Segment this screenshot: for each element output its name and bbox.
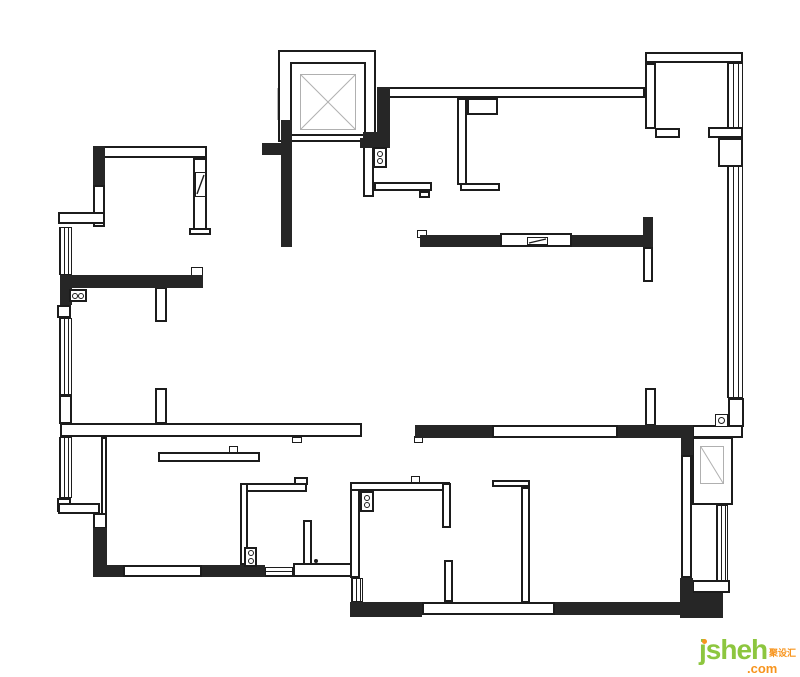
meter-symbol: [715, 414, 728, 427]
wall-segment: [645, 388, 656, 426]
wall-segment: [123, 565, 202, 577]
door-point: [314, 559, 318, 563]
wall-segment: [158, 452, 260, 462]
wall-solid: [350, 602, 422, 617]
wall-segment: [93, 513, 107, 529]
wall-segment: [57, 305, 71, 318]
wall-solid: [262, 143, 281, 155]
wall-segment: [350, 482, 450, 491]
floorplan-image: jsheh 聚设汇 .com: [0, 0, 800, 677]
wall-segment: [681, 455, 692, 578]
wall-notch: [229, 446, 238, 453]
wall-segment: [303, 520, 312, 567]
wall-segment: [692, 580, 730, 593]
wall-segment: [521, 487, 530, 603]
wall-solid: [555, 602, 697, 615]
wall-notch: [411, 476, 420, 483]
wall-segment: [59, 395, 72, 424]
wall-segment: [645, 52, 743, 63]
wall-segment: [492, 480, 530, 487]
wall-segment: [422, 602, 555, 615]
wall-solid: [93, 146, 105, 185]
wall-notch: [195, 172, 206, 197]
wall-segment: [655, 128, 680, 138]
ac-unit-box: [700, 446, 724, 484]
wall-solid: [643, 217, 653, 235]
wall-solid: [281, 120, 292, 247]
window-glazing: [351, 578, 363, 602]
wall-solid: [415, 425, 492, 438]
wall-segment: [155, 388, 167, 424]
window-glazing: [716, 505, 728, 582]
window-glazing: [727, 63, 743, 398]
wall-solid: [680, 578, 693, 618]
wall-solid: [60, 275, 203, 288]
wall-segment: [101, 437, 107, 515]
wall-solid: [93, 565, 123, 577]
wall-segment: [293, 563, 352, 577]
wall-segment: [457, 98, 467, 185]
wall-segment: [350, 482, 360, 578]
wall-solid: [572, 235, 653, 247]
wall-segment: [294, 477, 308, 485]
wall-segment: [444, 560, 453, 602]
wall-segment: [645, 63, 656, 129]
window-glazing: [265, 567, 293, 577]
socket-symbol: [69, 289, 87, 302]
wall-segment: [155, 287, 167, 322]
wall-segment: [189, 228, 211, 235]
wall-segment: [492, 425, 618, 438]
wall-notch: [292, 437, 302, 443]
watermark-brand: jsheh: [699, 636, 767, 664]
wall-segment: [467, 98, 498, 115]
window-glazing: [59, 227, 72, 275]
wall-segment: [60, 423, 362, 437]
window-glazing: [59, 437, 72, 498]
wall-solid: [377, 87, 390, 148]
wall-segment: [374, 182, 432, 191]
elevator-shaft-box: [300, 74, 356, 130]
socket-symbol: [373, 147, 387, 168]
wall-solid: [420, 235, 500, 247]
watermark-suffix: .com: [747, 661, 777, 676]
floorplan: [0, 0, 800, 677]
watermark-chinese-text: 聚设汇: [769, 646, 796, 659]
wall-segment: [442, 483, 451, 528]
wall-solid: [693, 593, 723, 618]
socket-symbol: [360, 491, 374, 512]
wall-segment: [419, 191, 430, 198]
wall-segment: [718, 138, 743, 167]
wall-segment: [58, 212, 105, 224]
wall-solid: [681, 425, 693, 455]
wall-segment: [460, 183, 500, 191]
watermark-j-dot: [702, 639, 707, 644]
wall-segment: [728, 398, 744, 427]
socket-symbol: [244, 547, 257, 567]
wall-solid: [363, 132, 377, 148]
wall-segment: [708, 127, 743, 138]
wall-notch: [527, 237, 548, 245]
watermark: jsheh 聚设汇 .com: [693, 634, 799, 677]
wall-segment: [388, 87, 645, 98]
wall-segment: [643, 247, 653, 282]
window-glazing: [59, 318, 72, 395]
wall-segment: [93, 146, 207, 158]
